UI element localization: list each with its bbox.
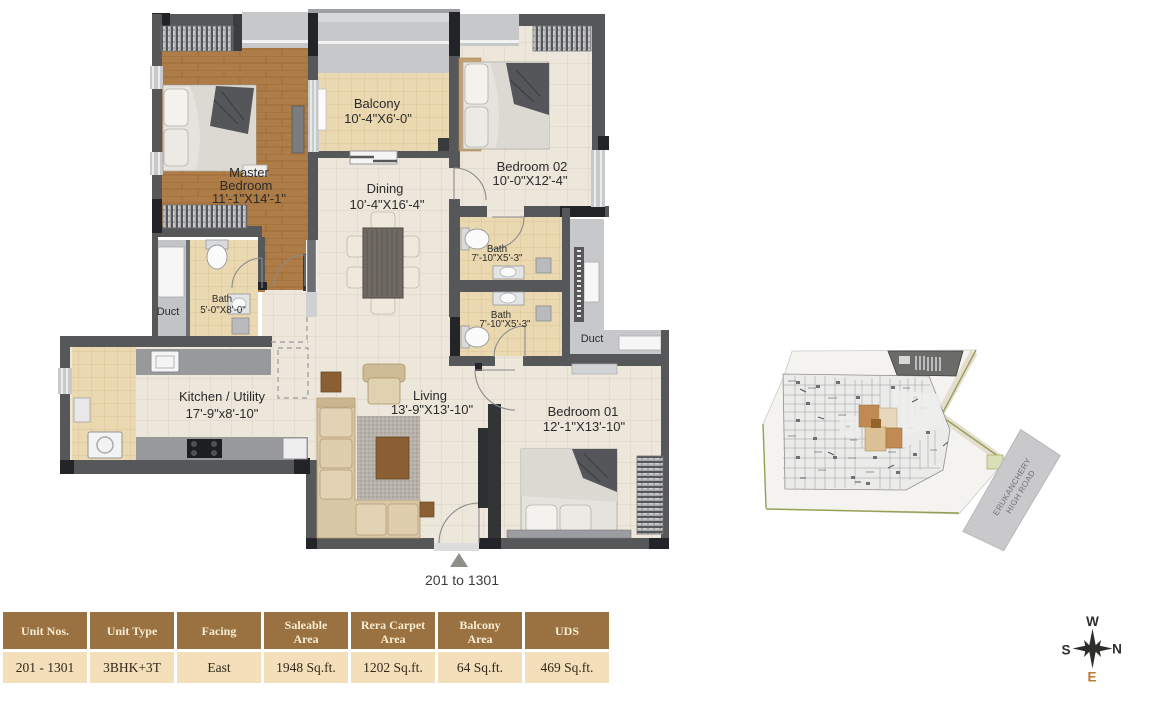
- svg-text:Facing: Facing: [202, 624, 237, 638]
- svg-text:7'-10"X5'-3": 7'-10"X5'-3": [480, 319, 532, 330]
- svg-text:11'-1"X14'-1": 11'-1"X14'-1": [212, 191, 286, 206]
- svg-text:S: S: [1061, 643, 1070, 658]
- svg-text:12'-1"X13'-10": 12'-1"X13'-10": [543, 419, 626, 434]
- svg-text:East: East: [207, 660, 230, 675]
- svg-text:Kitchen / Utility: Kitchen / Utility: [179, 389, 265, 404]
- svg-text:Living: Living: [413, 388, 447, 403]
- svg-text:1948 Sq.ft.: 1948 Sq.ft.: [276, 660, 336, 675]
- svg-text:5'-0"X8'-0": 5'-0"X8'-0": [200, 305, 246, 316]
- svg-text:Saleable: Saleable: [285, 618, 328, 632]
- svg-text:10'-0"X12'-4": 10'-0"X12'-4": [493, 173, 568, 188]
- svg-text:Area: Area: [467, 632, 492, 646]
- svg-text:1202 Sq.ft.: 1202 Sq.ft.: [363, 660, 423, 675]
- svg-text:17'-9"x8'-10": 17'-9"x8'-10": [186, 406, 259, 421]
- svg-text:E: E: [1087, 670, 1096, 685]
- svg-text:Area: Area: [293, 632, 318, 646]
- svg-text:Bedroom 01: Bedroom 01: [548, 404, 619, 419]
- svg-text:N: N: [1112, 642, 1122, 657]
- svg-text:201 - 1301: 201 - 1301: [16, 660, 75, 675]
- svg-text:13'-9"X13'-10": 13'-9"X13'-10": [391, 402, 474, 417]
- svg-text:Bath: Bath: [212, 294, 232, 305]
- svg-text:10'-4"X6'-0": 10'-4"X6'-0": [344, 111, 412, 126]
- svg-text:UDS: UDS: [555, 624, 579, 638]
- svg-text:7'-10"X5'-3": 7'-10"X5'-3": [472, 253, 524, 264]
- svg-text:201 to 1301: 201 to 1301: [425, 572, 499, 588]
- svg-text:W: W: [1086, 614, 1099, 629]
- svg-text:Rera Carpet: Rera Carpet: [361, 618, 425, 632]
- svg-text:469 Sq.ft.: 469 Sq.ft.: [541, 660, 594, 675]
- svg-text:10'-4"X16'-4": 10'-4"X16'-4": [350, 197, 425, 212]
- svg-text:Duct: Duct: [157, 306, 180, 318]
- svg-text:Area: Area: [380, 632, 405, 646]
- svg-text:Balcony: Balcony: [459, 618, 500, 632]
- svg-text:64 Sq.ft.: 64 Sq.ft.: [457, 660, 503, 675]
- svg-text:3BHK+3T: 3BHK+3T: [103, 660, 162, 675]
- svg-text:Unit Type: Unit Type: [107, 624, 158, 638]
- svg-text:Unit Nos.: Unit Nos.: [21, 624, 69, 638]
- svg-text:Bedroom 02: Bedroom 02: [497, 159, 568, 174]
- svg-text:Duct: Duct: [581, 333, 604, 345]
- svg-text:Dining: Dining: [367, 181, 404, 196]
- svg-text:Balcony: Balcony: [354, 96, 401, 111]
